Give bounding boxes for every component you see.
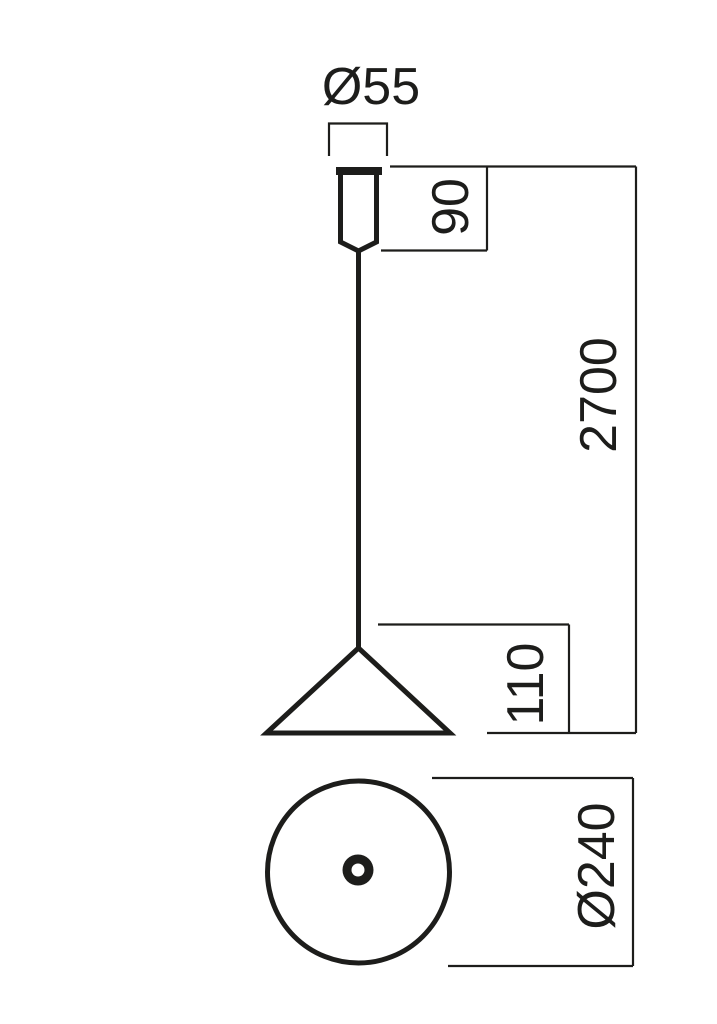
center-hub-hole bbox=[352, 864, 365, 877]
canopy-height-label: 90 bbox=[422, 178, 480, 236]
canopy-diameter-bracket bbox=[329, 124, 387, 157]
front-view bbox=[267, 167, 451, 733]
cone-shade bbox=[267, 648, 451, 733]
canopy-body bbox=[341, 173, 377, 251]
shade-diameter-label: Ø240 bbox=[568, 802, 626, 929]
suspension-length-label: 2700 bbox=[570, 337, 628, 453]
shade-height-label: 110 bbox=[497, 643, 555, 726]
dimension-drawing-page: Ø55 90 2700 110 Ø240 bbox=[0, 0, 717, 1024]
pendant-lamp-technical-drawing: Ø55 90 2700 110 Ø240 bbox=[0, 0, 717, 1024]
bottom-view bbox=[268, 781, 450, 963]
canopy-diameter-label: Ø55 bbox=[322, 58, 420, 116]
